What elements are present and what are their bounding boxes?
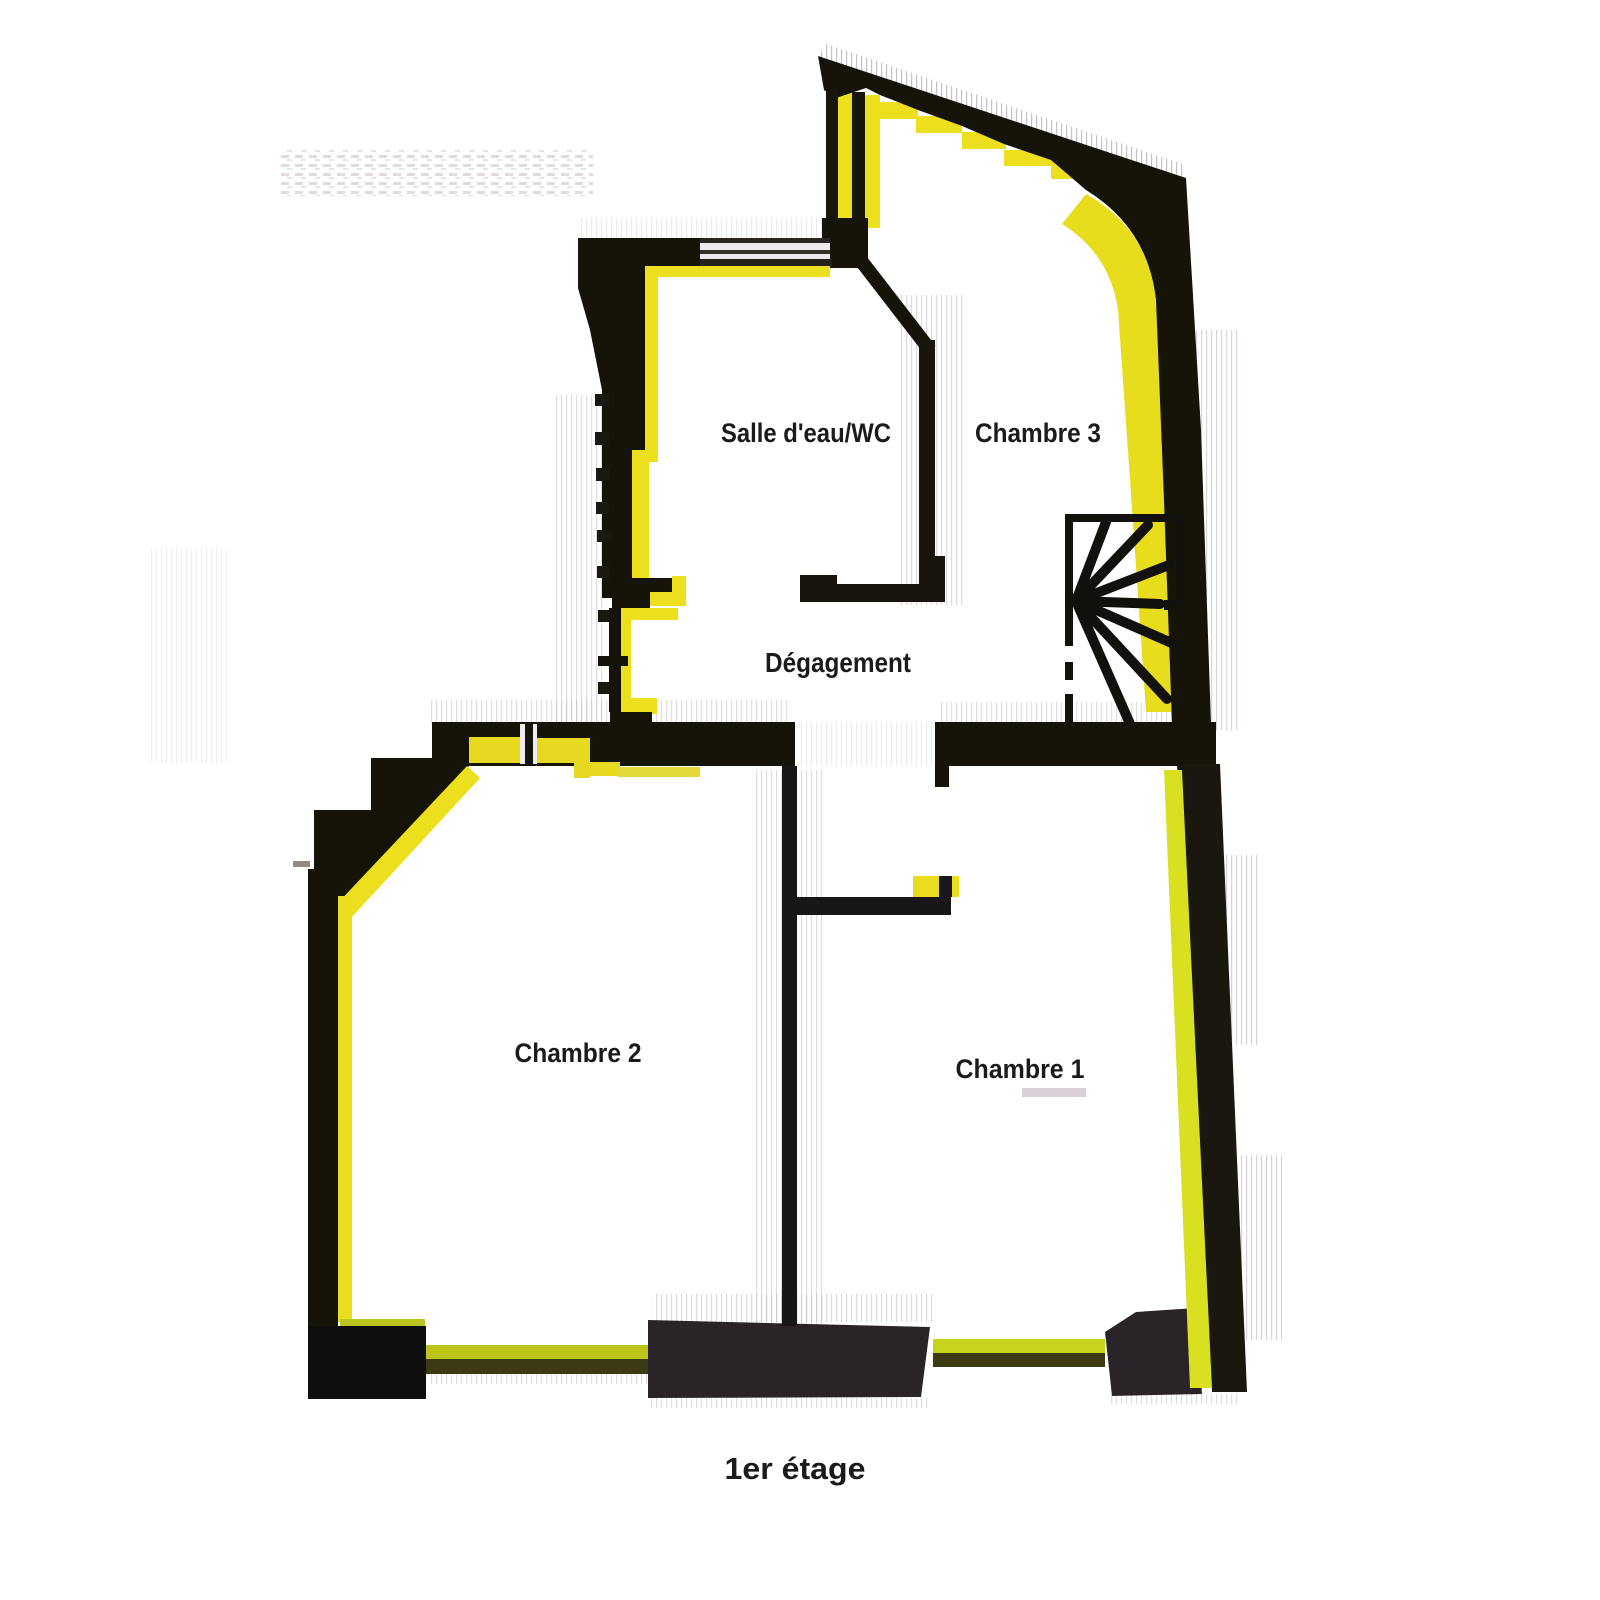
svg-text:Chambre 2: Chambre 2	[515, 1038, 642, 1068]
svg-text:Salle d'eau/WC: Salle d'eau/WC	[721, 418, 891, 448]
svg-text:Chambre 1: Chambre 1	[956, 1054, 1085, 1084]
svg-text:Chambre 3: Chambre 3	[975, 418, 1101, 448]
svg-text:Dégagement: Dégagement	[765, 647, 911, 678]
svg-text:1er étage: 1er étage	[725, 1451, 866, 1486]
